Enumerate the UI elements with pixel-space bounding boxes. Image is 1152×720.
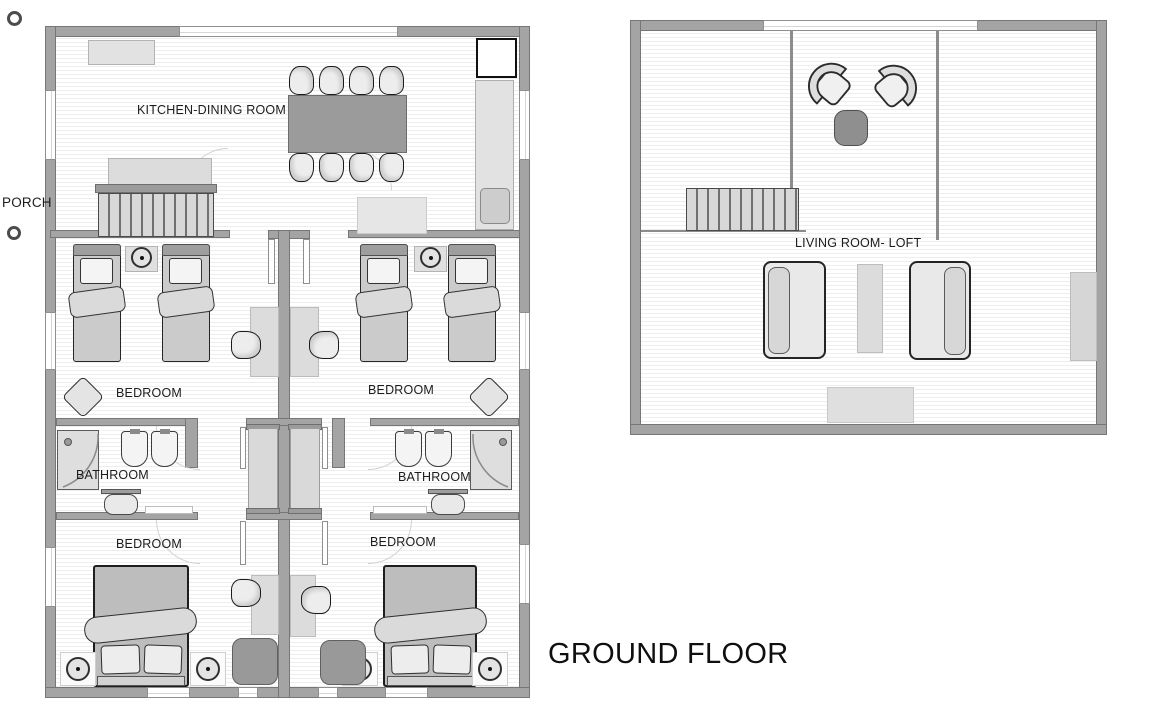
- toilet: [431, 494, 465, 515]
- twin-bed: [162, 244, 210, 362]
- loft-partition-left: [790, 31, 793, 188]
- door-bedroom-bottom-left: [240, 521, 246, 565]
- coffee-table: [857, 264, 883, 353]
- kitchen-sink: [480, 188, 510, 224]
- wall-shelf: [1070, 272, 1097, 361]
- window-bottom-4: [385, 687, 428, 698]
- bed-blanket: [354, 285, 413, 319]
- desk-chair: [301, 586, 331, 614]
- window-left-2: [45, 312, 56, 370]
- bathroom-right-label: BATHROOM: [398, 470, 471, 484]
- sideboard: [88, 40, 155, 65]
- bed-headboard: [162, 244, 210, 256]
- bed-pillow: [367, 258, 400, 284]
- shower-door-icon: [471, 431, 513, 491]
- desk-chair: [231, 331, 261, 359]
- wall-bath-divider-left: [56, 418, 198, 426]
- bath-mat: [145, 506, 193, 514]
- twin-bed: [73, 244, 121, 362]
- dining-chair: [289, 66, 314, 95]
- loft-wall-left: [630, 20, 641, 435]
- kitchen-rug: [357, 197, 427, 234]
- toilet: [104, 494, 138, 515]
- staircase-loft: [686, 188, 799, 231]
- kitchen-dining-label: KITCHEN-DINING ROOM: [137, 103, 286, 117]
- dining-chair: [379, 153, 404, 182]
- shower: [470, 430, 512, 490]
- bed-headboard: [360, 244, 408, 256]
- window-bottom-1: [147, 687, 190, 698]
- window-bottom-3: [318, 687, 338, 698]
- table-lamp-icon: [66, 657, 90, 681]
- bath-mat: [373, 506, 427, 514]
- wall-party-center: [278, 230, 290, 698]
- table-lamp-icon: [420, 247, 441, 268]
- bed-headboard: [448, 244, 496, 256]
- bathroom-left-label: BATHROOM: [76, 468, 149, 482]
- ottoman: [320, 640, 366, 685]
- closet-cap: [246, 508, 280, 514]
- window-right-1: [519, 90, 530, 160]
- window-right-2: [519, 312, 530, 370]
- window-right-3: [519, 544, 530, 604]
- fridge: [476, 38, 517, 78]
- door-bedroom-bottom-right: [322, 521, 328, 565]
- door-bedroom-top-right: [303, 239, 310, 284]
- porch-label: PORCH: [2, 195, 52, 210]
- sofa-cushion: [944, 267, 966, 355]
- window-bottom-2: [238, 687, 258, 698]
- loft-partition-right: [936, 31, 939, 240]
- loft-window-top: [763, 20, 978, 31]
- wall-stub-bath-right: [332, 418, 345, 468]
- door-bathroom-left: [240, 427, 246, 469]
- closet: [290, 428, 320, 512]
- table-lamp-icon: [131, 247, 152, 268]
- window-top: [179, 26, 398, 37]
- twin-bed: [448, 244, 496, 362]
- closet-cap: [288, 508, 322, 514]
- closet: [248, 428, 278, 512]
- stair-top-bar: [95, 184, 217, 193]
- bed-pillow: [80, 258, 113, 284]
- door-bedroom-top-left: [268, 239, 275, 284]
- round-side-table: [834, 110, 868, 146]
- dining-chair: [319, 66, 344, 95]
- sofa: [763, 261, 826, 359]
- staircase-ground: [98, 193, 214, 237]
- sofa: [909, 261, 971, 360]
- bed-blanket: [156, 285, 215, 319]
- loft-wall-bottom: [630, 424, 1107, 435]
- window-left-3: [45, 547, 56, 607]
- bedroom-top-left-label: BEDROOM: [116, 386, 182, 400]
- bed-headboard: [73, 244, 121, 256]
- bathroom-sink: [425, 431, 452, 467]
- stair-landing: [108, 158, 212, 185]
- bed-headboard: [97, 676, 185, 686]
- twin-bed: [360, 244, 408, 362]
- bed-pillow: [101, 644, 141, 674]
- bedroom-bottom-right-label: BEDROOM: [370, 535, 436, 549]
- door-bathroom-right: [322, 427, 328, 469]
- shower-door-icon: [58, 431, 100, 491]
- bed-blanket: [67, 285, 126, 319]
- bathroom-sink: [395, 431, 422, 467]
- bed-pillow: [455, 258, 488, 284]
- loft-rug: [827, 387, 914, 423]
- dining-chair: [349, 153, 374, 182]
- bed-blanket: [442, 285, 501, 319]
- porch-post-top: [7, 11, 22, 26]
- loft-wall-right: [1096, 20, 1107, 435]
- desk-chair: [231, 579, 261, 607]
- dining-chair: [319, 153, 344, 182]
- desk-chair: [309, 331, 339, 359]
- porch-post-bottom: [7, 226, 21, 240]
- bed-pillow: [169, 258, 202, 284]
- floorplan-canvas: PORCH KITCHEN-DINING ROOM BEDROOM: [0, 0, 1152, 720]
- dining-table: [288, 95, 407, 153]
- bed-pillow: [391, 644, 430, 674]
- sofa-cushion: [768, 267, 790, 354]
- table-lamp-icon: [196, 657, 220, 681]
- living-room-loft-label: LIVING ROOM- LOFT: [795, 236, 921, 250]
- ottoman: [232, 638, 278, 685]
- bed-headboard: [387, 676, 473, 686]
- bed-pillow: [144, 644, 183, 674]
- dining-chair: [349, 66, 374, 95]
- dining-chair: [379, 66, 404, 95]
- bedroom-top-right-label: BEDROOM: [368, 383, 434, 397]
- bathroom-sink: [121, 431, 148, 467]
- page-title: GROUND FLOOR: [548, 638, 788, 671]
- table-lamp-icon: [478, 657, 502, 681]
- window-left-1: [45, 90, 56, 160]
- bed-pillow: [433, 644, 472, 674]
- dining-chair: [289, 153, 314, 182]
- wall-bath-divider-right: [370, 418, 519, 426]
- bedroom-bottom-left-label: BEDROOM: [116, 537, 182, 551]
- bathroom-sink: [151, 431, 178, 467]
